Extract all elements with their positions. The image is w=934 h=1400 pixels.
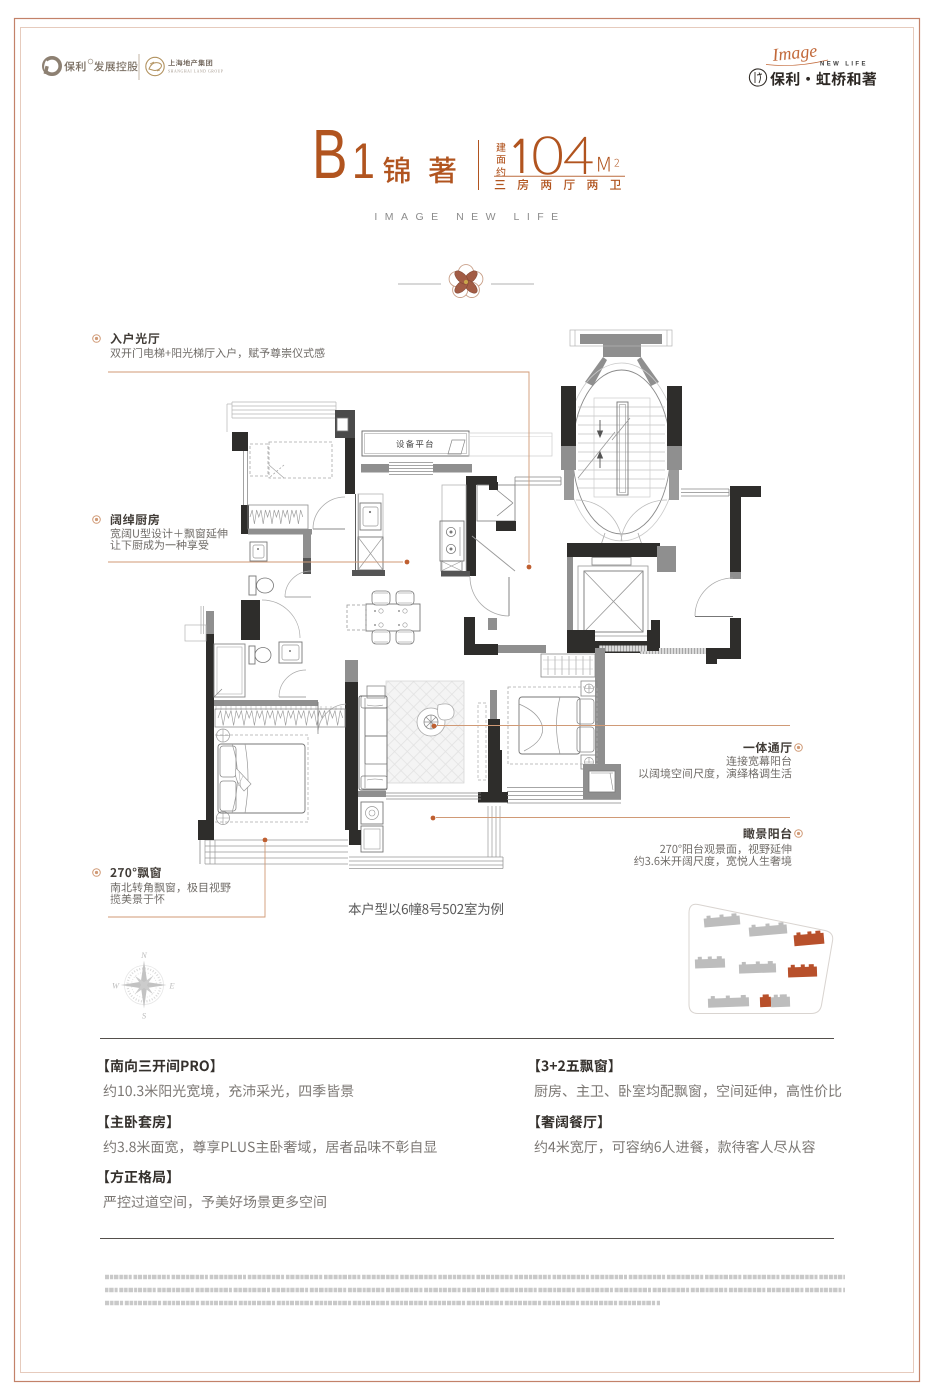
svg-text:N: N — [140, 950, 148, 960]
svg-text:S: S — [142, 1011, 147, 1021]
svg-text:E: E — [168, 981, 175, 991]
svg-text:Image: Image — [770, 40, 818, 65]
svg-text:NEW LIFE: NEW LIFE — [820, 62, 868, 68]
svg-text:B: B — [312, 116, 347, 194]
svg-text:1: 1 — [352, 133, 375, 189]
svg-text:SHANGHAI LAND GROUP: SHANGHAI LAND GROUP — [168, 70, 224, 74]
svg-text:W: W — [112, 981, 120, 991]
svg-text:IMAGE NEW LIFE: IMAGE NEW LIFE — [374, 211, 565, 223]
